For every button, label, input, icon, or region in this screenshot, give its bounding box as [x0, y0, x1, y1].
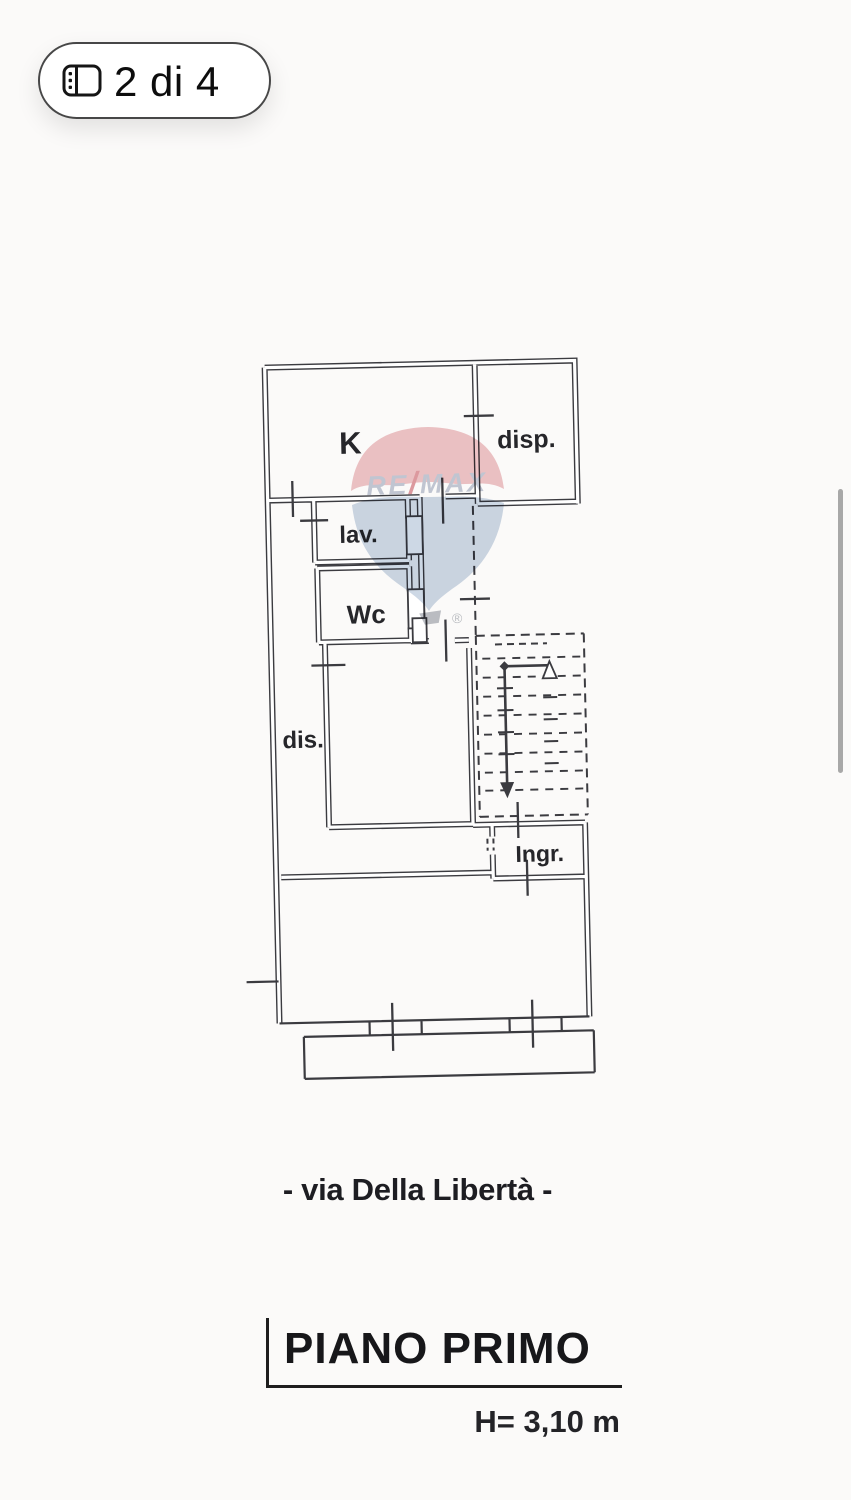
stair-arrow-up: [542, 661, 556, 678]
street-caption: - via Della Libertà -: [0, 1172, 843, 1208]
floor-title: PIANO PRIMO: [266, 1318, 622, 1385]
title-underline: [266, 1385, 622, 1388]
balloon-bottom: [352, 497, 504, 611]
stair-treads: [482, 657, 583, 791]
scrollbar-thumb[interactable]: [838, 489, 843, 773]
room-label-k: K: [339, 425, 363, 461]
remax-watermark: RE/MAX ®: [351, 427, 504, 626]
floor-plan-drawing: K disp. lav. Wc dis. Ingr. RE/MAX ®: [0, 0, 851, 1160]
floor-title-block: PIANO PRIMO H= 3,10 m: [266, 1318, 622, 1440]
room-label-ingr: Ingr.: [515, 840, 564, 867]
stairwell: [473, 503, 589, 850]
photo-viewer: 2 di 4: [0, 0, 851, 1500]
ceiling-height-note: H= 3,10 m: [266, 1404, 622, 1440]
balcony-and-parapet: [247, 974, 595, 1080]
registered-mark: ®: [452, 610, 463, 626]
room-label-disp: disp.: [497, 425, 556, 454]
room-label-wc: Wc: [346, 599, 386, 630]
room-label-dis: dis.: [282, 726, 324, 754]
